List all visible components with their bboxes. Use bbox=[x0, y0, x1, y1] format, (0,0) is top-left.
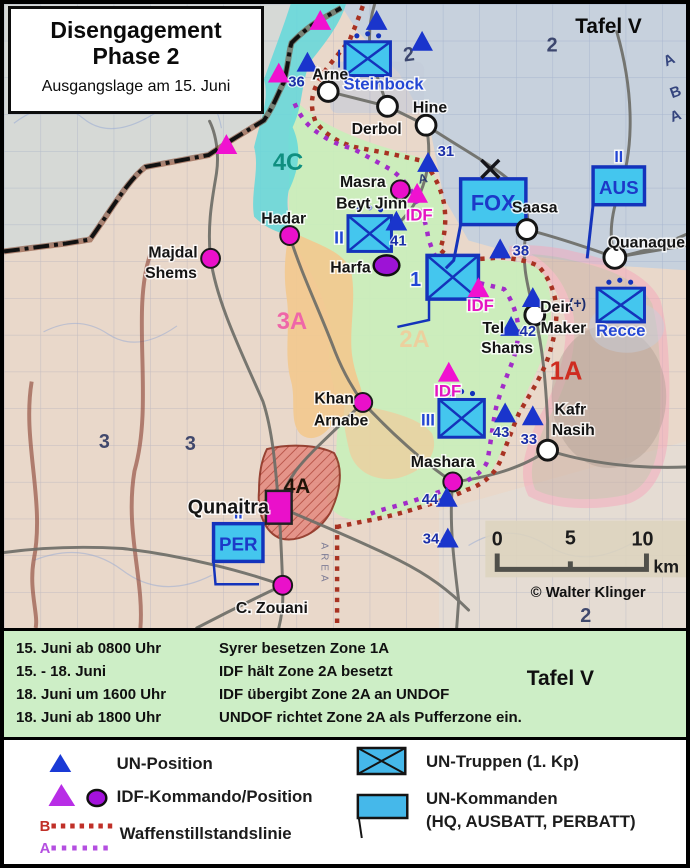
place-label-deir: Deir bbox=[540, 299, 571, 316]
idf-kommando-ellipse-harfa bbox=[374, 255, 400, 275]
idf-label: IDF bbox=[434, 381, 461, 400]
idf-triangle-icon bbox=[48, 784, 75, 806]
map-tafel-label: Tafel V bbox=[575, 15, 642, 38]
place-label-hadar: Hadar bbox=[261, 211, 306, 228]
town-circle-arne bbox=[318, 82, 338, 102]
town-circle-kafr-nasih bbox=[538, 440, 558, 460]
timeline-panel: 15. Juni ab 0800 Uhr Syrer besetzen Zone… bbox=[4, 628, 686, 740]
place-label-saasa: Saasa bbox=[512, 200, 558, 217]
place-label-hine: Hine bbox=[413, 99, 447, 116]
zone-label-1a: 1A bbox=[550, 358, 583, 386]
page-content: 0 5 10 km © Walter Klinger 2 2 2 3 3 A B… bbox=[4, 4, 686, 864]
place-label-zouani: C. Zouani bbox=[236, 600, 308, 617]
place-label-beyt-jinn: Beyt Jinn bbox=[336, 196, 407, 213]
timeline-time: 15. Juni ab 0800 Uhr bbox=[16, 640, 219, 663]
legend-un-troops-label: UN-Truppen (1. Kp) bbox=[426, 752, 579, 771]
place-label-masra: Masra bbox=[340, 174, 386, 191]
idf-circle-khan bbox=[353, 393, 372, 412]
legend-line-b-letter: B bbox=[40, 819, 51, 835]
un-number-43: 43 bbox=[493, 425, 509, 441]
place-label-shams: Shams bbox=[481, 340, 533, 357]
map-area: 0 5 10 km © Walter Klinger 2 2 2 3 3 A B… bbox=[4, 4, 686, 628]
place-label-arnabe: Arnabe bbox=[314, 412, 369, 429]
un-number-36: 36 bbox=[288, 74, 304, 90]
flag-echelon: II bbox=[614, 149, 623, 166]
idf-label: IDF bbox=[406, 206, 433, 225]
un-hq-flag-pole bbox=[359, 818, 362, 838]
scale-tick-0: 0 bbox=[492, 528, 503, 550]
place-label-majdal: Majdal bbox=[148, 244, 197, 261]
place-label-nasih: Nasih bbox=[552, 422, 595, 439]
timeline-time: 18. Juni ab 1800 Uhr bbox=[16, 709, 219, 732]
town-circle-derbol bbox=[378, 96, 398, 116]
un-hq-flag-icon bbox=[358, 795, 407, 818]
place-label-mashara: Mashara bbox=[411, 454, 475, 471]
map-title-line2: Phase 2 bbox=[11, 43, 261, 69]
un-position-triangle-icon bbox=[49, 754, 71, 772]
screenshot-frame: 0 5 10 km © Walter Klinger 2 2 2 3 3 A B… bbox=[0, 0, 690, 868]
flag-label-per: PER bbox=[219, 533, 258, 554]
unit-echelon: III bbox=[421, 410, 435, 429]
place-label-shems: Shems bbox=[145, 265, 197, 282]
grid-number: 2 bbox=[580, 605, 591, 627]
flag-label-fox: FOX bbox=[471, 191, 516, 216]
legend-line-a-letter: A bbox=[40, 841, 51, 857]
un-number-41: 41 bbox=[390, 233, 406, 249]
idf-rect-qunaitra bbox=[266, 491, 292, 524]
timeline-row: 18. Juni ab 1800 Uhr UNDOF richtet Zone … bbox=[16, 709, 686, 732]
legend-ceasefire-label: Waffenstillstandslinie bbox=[120, 824, 292, 843]
map-title-line1: Disengagement bbox=[11, 17, 261, 43]
grid-number: 3 bbox=[99, 431, 110, 453]
place-label-harfa: Harfa bbox=[330, 259, 371, 276]
idf-circle-majdal bbox=[201, 249, 220, 268]
legend-un-hq-line1: UN-Kommanden bbox=[426, 789, 558, 808]
zone-label-3a: 3A bbox=[277, 308, 307, 335]
idf-position-ellipse-icon bbox=[88, 790, 107, 806]
idf-circle-zouani bbox=[273, 576, 292, 595]
place-label-quanaque: Quanaque bbox=[608, 234, 685, 251]
place-label-khan: Khan bbox=[314, 390, 354, 407]
scale-tick-5: 5 bbox=[565, 527, 576, 549]
timeline-time: 15. - 18. Juni bbox=[16, 663, 219, 686]
timeline-event: Syrer besetzen Zone 1A bbox=[219, 640, 389, 663]
idf-label: IDF bbox=[467, 296, 494, 315]
place-label-kafr: Kafr bbox=[555, 401, 587, 418]
unit-echelon: II bbox=[334, 227, 344, 247]
place-label-qunaitra: Qunaitra bbox=[188, 497, 270, 519]
scale-unit-label: km bbox=[653, 556, 679, 576]
timeline-row: 15. Juni ab 0800 Uhr Syrer besetzen Zone… bbox=[16, 640, 686, 663]
timeline-tafel-label: Tafel V bbox=[527, 667, 594, 691]
un-number-44: 44 bbox=[422, 492, 439, 508]
scale-tick-10: 10 bbox=[632, 528, 654, 550]
idf-circle-hadar bbox=[280, 226, 299, 245]
place-label-arne: Arne bbox=[312, 66, 348, 83]
place-label-tel: Tel bbox=[482, 320, 504, 337]
scale-bar: 0 5 10 km bbox=[485, 521, 686, 578]
unit-label-recce: Recce bbox=[596, 321, 645, 340]
unit-label-steinbock: Steinbock bbox=[343, 74, 424, 93]
legend-panel: UN-Position IDF-Kommando/Position B A Wa… bbox=[4, 740, 686, 864]
legend-un-position-label: UN-Position bbox=[117, 754, 213, 773]
un-number-38: 38 bbox=[513, 243, 529, 259]
town-circle-saasa bbox=[517, 220, 537, 240]
timeline-time: 18. Juni um 1600 Uhr bbox=[16, 686, 219, 709]
un-number-31: 31 bbox=[438, 144, 454, 160]
timeline-event: IDF übergibt Zone 2A an UNDOF bbox=[219, 686, 449, 709]
grid-number: 3 bbox=[185, 433, 196, 455]
place-label-derbol: Derbol bbox=[352, 121, 402, 138]
un-number-42: 42 bbox=[520, 324, 536, 340]
basemap-area-text: AREA bbox=[318, 543, 329, 586]
un-number-34: 34 bbox=[423, 532, 440, 548]
zone-label-2a: 2A bbox=[399, 326, 429, 353]
flag-label-aus: AUS bbox=[599, 177, 639, 198]
title-box: Disengagement Phase 2 Ausgangslage am 15… bbox=[8, 6, 264, 114]
unit-modifier: (+) bbox=[569, 295, 586, 311]
un-number-33: 33 bbox=[521, 432, 537, 448]
copyright-label: © Walter Klinger bbox=[531, 585, 646, 601]
map-subtitle: Ausgangslage am 15. Juni bbox=[11, 78, 261, 96]
grid-number: 2 bbox=[547, 35, 558, 57]
legend-idf-label: IDF-Kommando/Position bbox=[117, 787, 313, 806]
legend-un-hq-line2: (HQ, AUSBATT, PERBATT) bbox=[426, 812, 636, 831]
timeline-event: IDF hält Zone 2A besetzt bbox=[219, 663, 393, 686]
legend-canvas: UN-Position IDF-Kommando/Position B A Wa… bbox=[4, 740, 686, 864]
place-label-maker: Maker bbox=[541, 320, 587, 337]
unit-number: 1 bbox=[410, 269, 421, 291]
timeline-event: UNDOF richtet Zone 2A als Pufferzone ein… bbox=[219, 709, 522, 732]
town-circle-hine bbox=[416, 115, 436, 135]
zone-label-4c: 4C bbox=[273, 149, 303, 176]
